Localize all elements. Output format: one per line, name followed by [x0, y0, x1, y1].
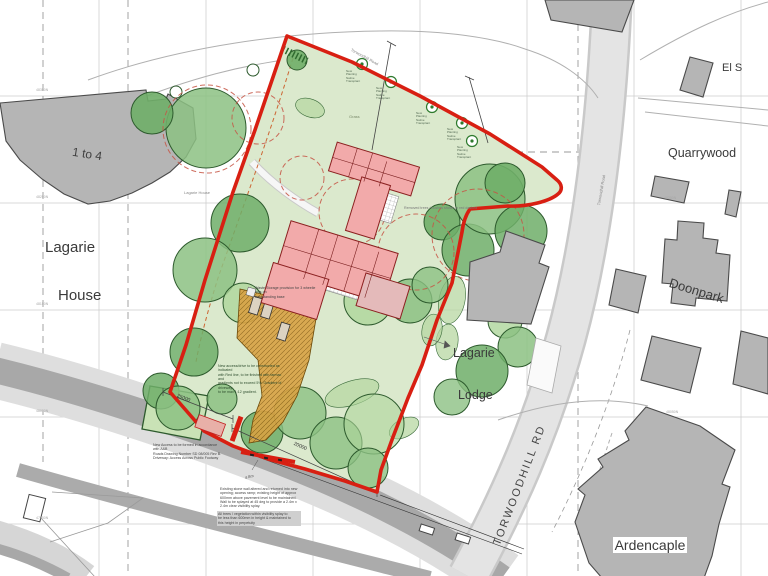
tree: [485, 163, 525, 203]
note-stone-wall: Existing stone wall altered and returned…: [220, 487, 302, 509]
tree: [131, 92, 173, 134]
note-waste-storage: Waste Storage provision for 3 wheelie bi…: [255, 286, 317, 299]
building-quarrywood-2: [725, 190, 741, 217]
label-lagarie-lodge-line1: Lagarie: [453, 343, 495, 364]
building-roadside: [609, 269, 646, 313]
label-ardencaple-line1: Ardencaple: [613, 537, 688, 553]
building-el-sub-sta: [680, 57, 713, 97]
new-tree-tag: New Planting Native Transplant: [376, 87, 390, 101]
label-lagarie-lodge-line2: Lodge: [458, 385, 495, 406]
gridline-label: 47950N: [36, 516, 48, 520]
label-ardencaple-hotel: Ardencaple Hotel: [598, 515, 702, 576]
note-removed-trees: Removed trees / bushes shown in red dash…: [404, 206, 496, 210]
gridline-label: 48250N: [36, 195, 48, 199]
label-quarrywood: Quarrywood: [668, 146, 736, 160]
note-new-access: New Access to be formed in accordance wi…: [153, 443, 223, 460]
note-access-drive: New access/drive to be constructed as in…: [218, 364, 284, 394]
note-visibility: All trees / vegetation within visibility…: [217, 511, 301, 526]
gridline-label: 48250N: [664, 196, 676, 200]
tree-small: [170, 86, 182, 98]
label-lagarie-lodge: Lagarie Lodge: [453, 322, 495, 427]
tree: [412, 267, 448, 303]
new-tree-tag: New Planting Native Transplant: [447, 128, 461, 142]
gridline-label: 48050N: [36, 409, 48, 413]
tree: [166, 88, 246, 168]
label-lagarie-house-line2: House: [58, 284, 101, 308]
label-lagarie-house-small: Lagarie House: [184, 191, 210, 196]
gridline-label: 48050N: [666, 410, 678, 414]
building-right-edge: [733, 331, 768, 394]
gridline-label: 48350N: [36, 88, 48, 92]
building-mid-east: [641, 336, 701, 393]
label-grass: Grass: [349, 115, 360, 120]
tree: [344, 394, 404, 454]
label-el-sub-sta: El S: [722, 62, 742, 75]
label-lagarie-house: Lagarie House: [45, 212, 101, 332]
tree-small: [247, 64, 259, 76]
gridline-label: 48150N: [36, 302, 48, 306]
new-tree-tag: New Planting Native Transplant: [457, 146, 471, 160]
label-lagarie-house-line1: Lagarie: [45, 236, 101, 260]
new-tree-tag: New Planting Native Transplant: [346, 70, 360, 84]
site-plan: 1 to 4 Lagarie House Lagarie Lodge Arden…: [0, 0, 768, 576]
new-tree-tag: New Planting Native Transplant: [416, 112, 430, 126]
